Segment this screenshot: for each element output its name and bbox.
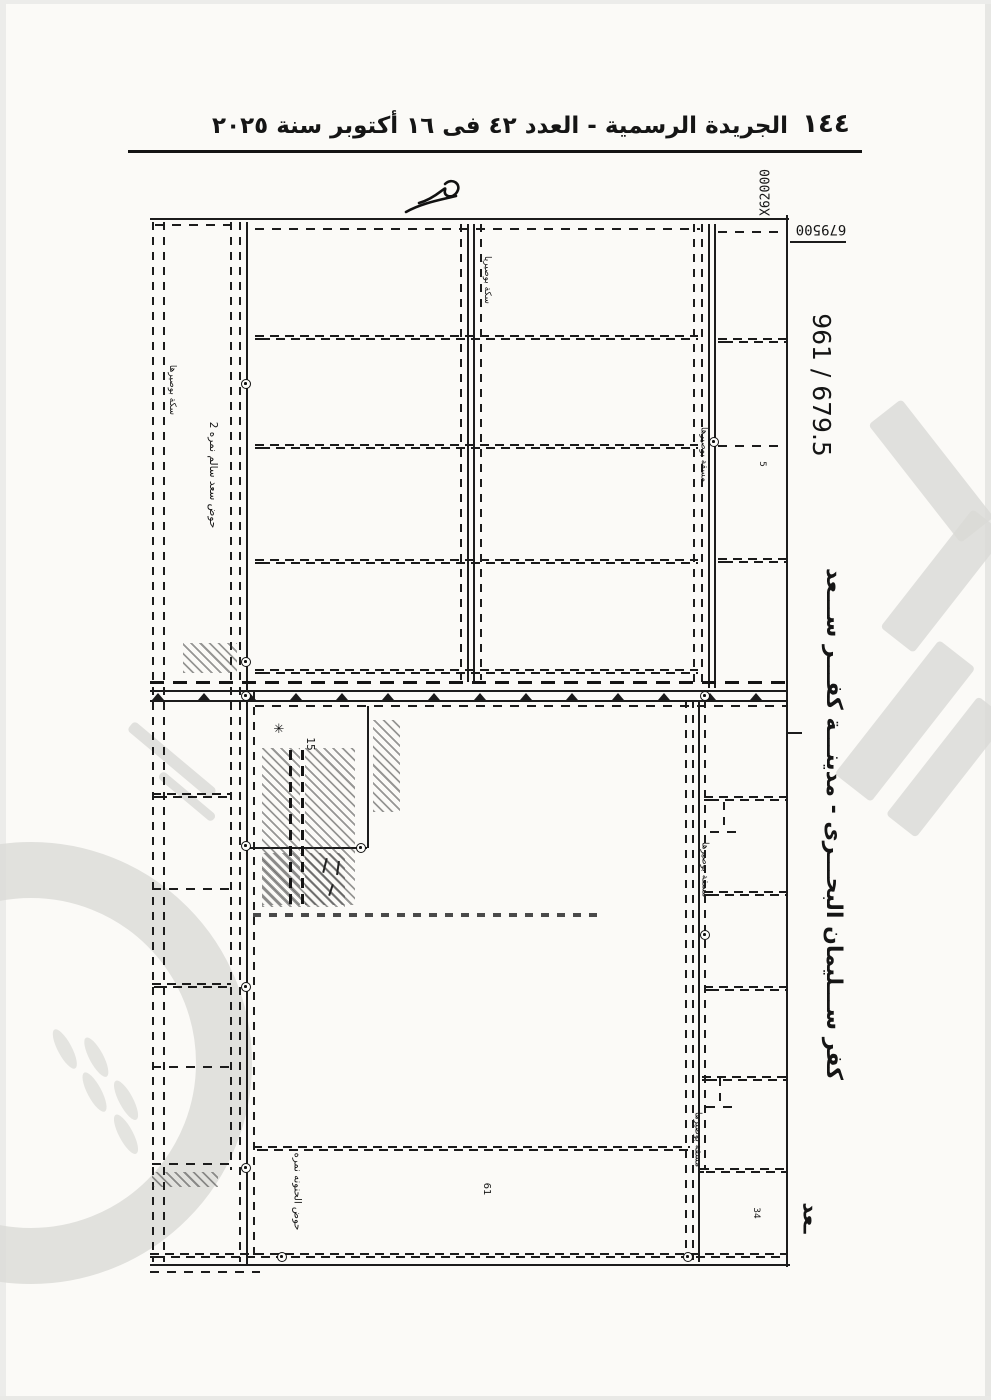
field-boundary <box>718 231 786 233</box>
track-road-left <box>152 222 154 1262</box>
road-label: مسقة بوصيرها <box>697 410 710 500</box>
plot-row-boundary <box>704 986 786 991</box>
road-label: سكة بوصيرها <box>165 345 179 435</box>
survey-point <box>700 691 710 701</box>
hatched-plot <box>183 643 237 673</box>
watermark-chevron <box>880 509 991 653</box>
track-road-center <box>467 224 469 682</box>
neatline-tick <box>790 241 846 243</box>
scan-edge-right <box>985 0 991 1400</box>
survey-point <box>241 691 251 701</box>
page-number: ١٤٤ <box>796 104 856 144</box>
plot-row-boundary <box>152 1163 231 1165</box>
district-title: كفر ســـليمان البحـــرى - مدينـــة كفـــ… <box>815 589 851 1059</box>
canal-road-right-lower <box>685 700 687 1260</box>
plot-number: 61 <box>479 1179 493 1199</box>
map-bottom-edge <box>150 1264 790 1266</box>
gazette-page: ١٤٤ الجريدة الرسمية - العدد ٤٢ فى ١٦ أكت… <box>0 0 991 1400</box>
survey-point <box>241 1163 251 1173</box>
sheet-reference: 961 / 679.5 <box>805 285 839 485</box>
basin-label-top: حوض سعد سالم نمره 2 <box>205 390 221 560</box>
plot-row-boundary <box>255 444 698 449</box>
grid-y-label: 679500 <box>791 220 851 238</box>
survey-point <box>356 843 366 853</box>
village-inner-boundary <box>301 750 304 905</box>
plot-row-boundary <box>718 558 786 563</box>
plot-row-boundary <box>253 1146 690 1151</box>
setback-annotation <box>719 1078 721 1108</box>
neatline-tick <box>788 732 802 734</box>
survey-point <box>700 930 710 940</box>
plot-row-boundary <box>718 338 786 343</box>
plot-row-boundary <box>152 888 231 890</box>
village-block-edge <box>367 706 369 848</box>
survey-point <box>241 379 251 389</box>
road-label: سكة بوصيريا <box>480 235 494 325</box>
plot-number: 15 <box>303 734 317 754</box>
survey-point <box>277 1252 287 1262</box>
map-right-neatline <box>786 215 788 1267</box>
plot-row-boundary <box>704 891 786 896</box>
plot-row-boundary <box>255 669 698 674</box>
map-bottom-overrun <box>150 1271 260 1273</box>
road-label: مسقة بوصيرها <box>698 825 711 915</box>
track-road-center <box>460 224 462 680</box>
header-rule <box>128 150 862 153</box>
grid-x-label: X62000 <box>759 160 774 226</box>
plot-row-boundary <box>152 793 231 798</box>
plot-row-boundary <box>702 1076 786 1081</box>
district-title-fragment: ـعد <box>796 1171 826 1266</box>
plot-row-boundary <box>152 1066 231 1068</box>
canal-road-right <box>714 224 716 688</box>
plot-row-boundary <box>700 1168 786 1173</box>
survey-point <box>241 657 251 667</box>
canal-road-right <box>693 224 695 686</box>
village-inner-boundary <box>289 750 292 905</box>
plot-number: 34 <box>749 1203 763 1223</box>
survey-point <box>683 1252 693 1262</box>
plot-row-boundary <box>704 796 786 801</box>
setback-annotation <box>723 802 725 832</box>
plot-number: 5 <box>755 454 769 474</box>
map-top-edge <box>150 218 789 220</box>
field-boundary <box>155 224 231 226</box>
survey-point <box>709 437 719 447</box>
header-title: الجريدة الرسمية - العدد ٤٢ فى ١٦ أكتوبر … <box>200 106 800 146</box>
survey-point <box>241 841 251 851</box>
main-road <box>150 681 787 684</box>
plot-row-boundary <box>718 445 786 447</box>
hatched-strip <box>152 1172 218 1187</box>
handwritten-mark <box>398 172 468 217</box>
hatched-plot <box>373 720 400 812</box>
scan-edge-top <box>0 0 991 4</box>
canal-road-main <box>253 692 255 1262</box>
plot-row-boundary <box>255 559 698 564</box>
track-road-center <box>473 224 475 682</box>
survey-point <box>241 982 251 992</box>
plot-row-boundary-faint <box>253 913 603 917</box>
field-boundary <box>255 228 700 230</box>
main-road <box>255 705 787 707</box>
canal-road-main <box>239 222 241 1262</box>
plot-row-boundary <box>255 335 698 340</box>
star-symbol: ✳ <box>270 720 288 738</box>
plot-row-boundary <box>152 983 231 988</box>
scan-edge-bottom <box>0 1396 991 1400</box>
